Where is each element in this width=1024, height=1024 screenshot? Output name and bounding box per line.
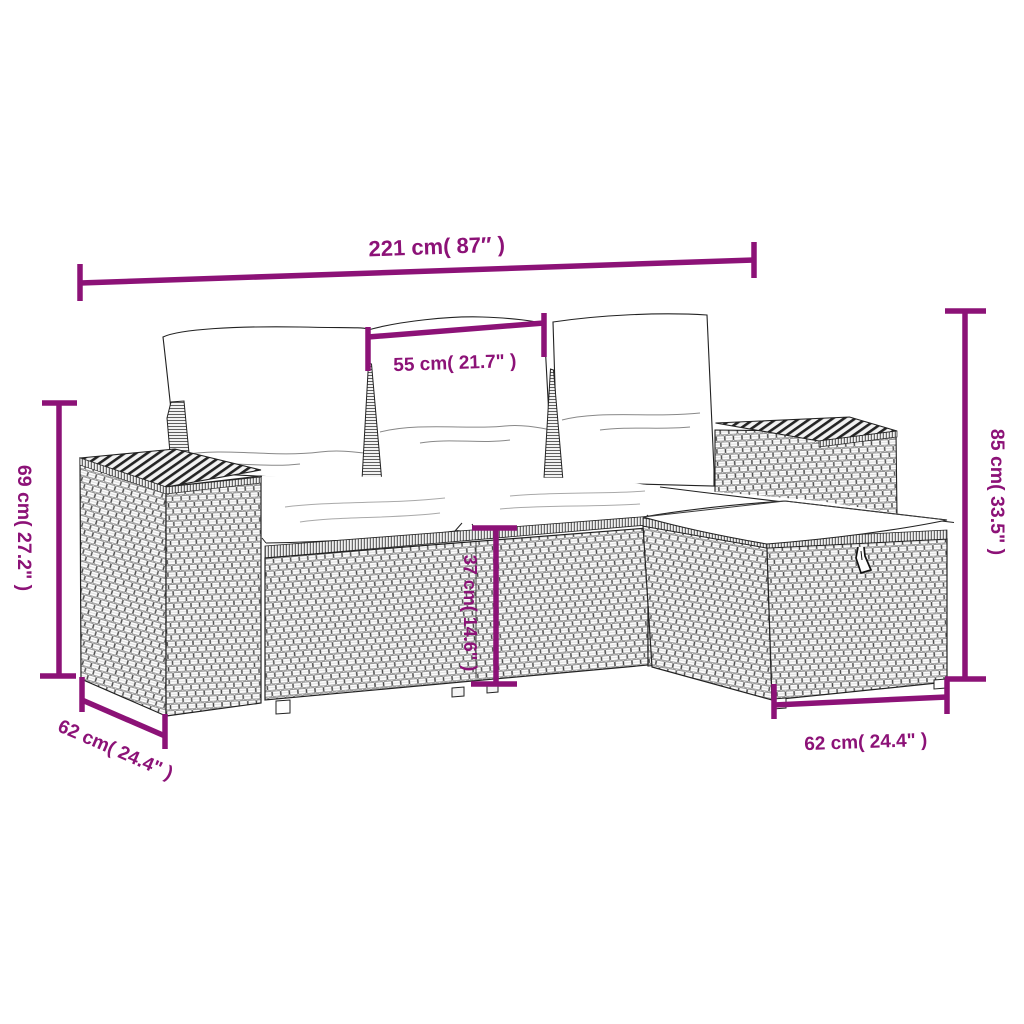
svg-text:221 cm( 87″ ): 221 cm( 87″ ) xyxy=(368,232,505,262)
svg-text:69 cm( 27.2" ): 69 cm( 27.2" ) xyxy=(13,465,35,591)
svg-text:62 cm( 24.4" ): 62 cm( 24.4" ) xyxy=(804,730,928,755)
svg-text:85 cm( 33.5" ): 85 cm( 33.5" ) xyxy=(986,429,1008,555)
svg-text:37 cm( 14.6" ): 37 cm( 14.6" ) xyxy=(460,555,480,672)
svg-text:55 cm( 21.7" ): 55 cm( 21.7" ) xyxy=(393,351,517,376)
